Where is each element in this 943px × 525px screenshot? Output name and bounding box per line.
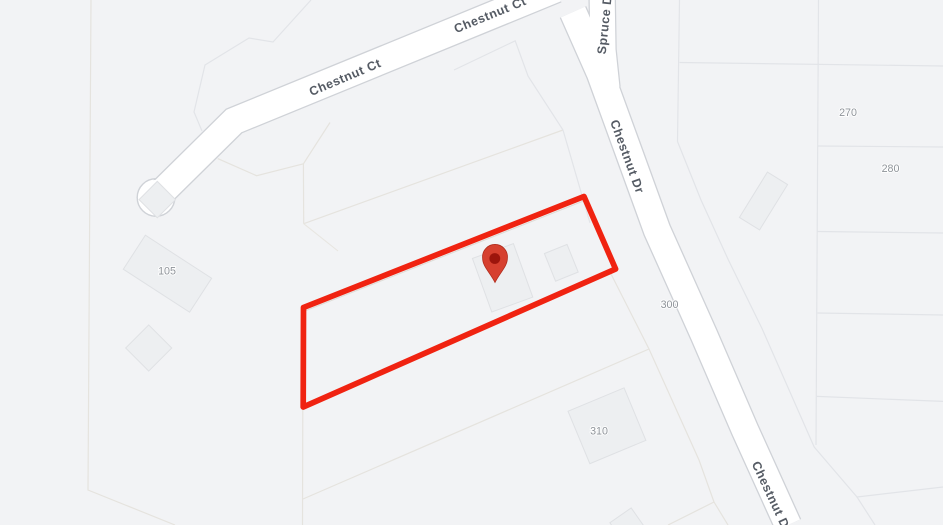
svg-text:280: 280	[882, 163, 900, 175]
svg-text:300: 300	[661, 299, 679, 311]
svg-text:105: 105	[158, 266, 176, 278]
svg-text:310: 310	[590, 426, 608, 438]
svg-text:270: 270	[839, 107, 857, 119]
